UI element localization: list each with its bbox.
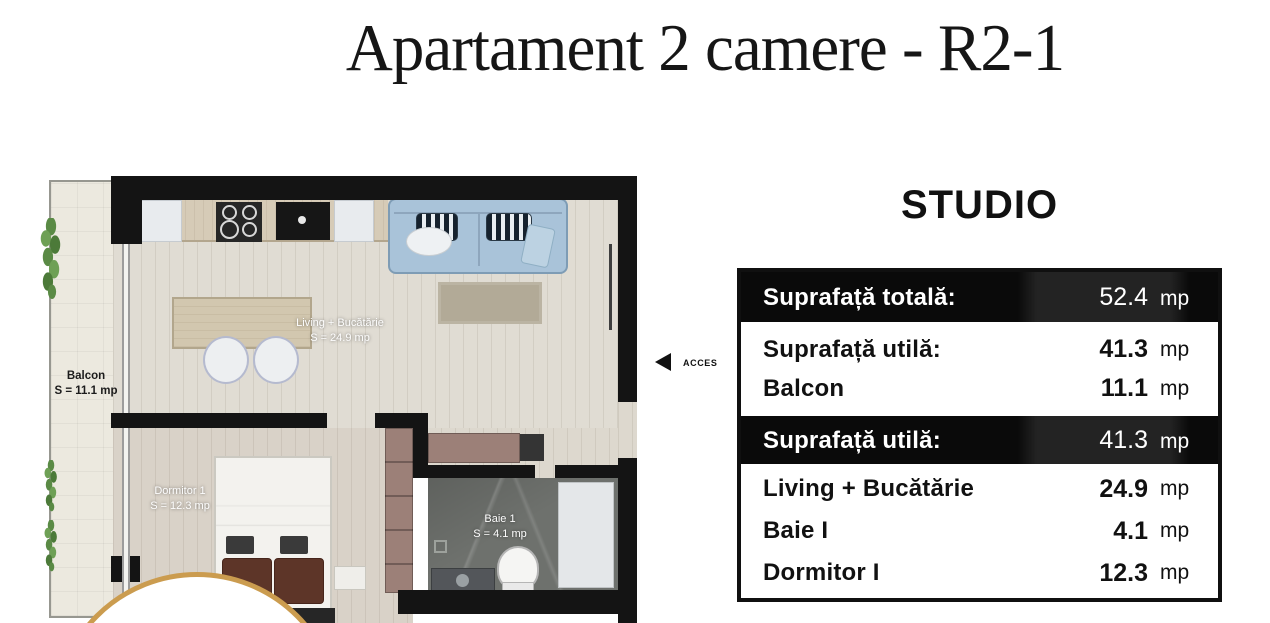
appliance: [520, 434, 544, 461]
area-row-value: 24.9: [1066, 475, 1148, 504]
room-name: Dormitor 1: [115, 484, 245, 499]
wall: [618, 176, 637, 402]
wall: [413, 465, 535, 478]
entry-floor: [618, 402, 637, 458]
area-row-label: Suprafață utilă:: [763, 427, 1066, 455]
floor-plan: Living + Bucătărie S = 24.9 mp Balcon S …: [0, 0, 720, 623]
wardrobe: [385, 428, 413, 593]
room-name: Balcon: [36, 369, 136, 384]
plant-icon: [38, 218, 64, 300]
room-area: S = 11.1 mp: [36, 384, 136, 399]
wall: [398, 590, 637, 614]
bed-runner: [226, 536, 254, 554]
shower: [558, 482, 614, 588]
bed-runner: [280, 536, 308, 554]
bed-pillow: [274, 558, 324, 604]
kitchen-cabinet: [140, 200, 182, 242]
table-row: Suprafață utilă: 41.3 mp Balcon 11.1 mp: [741, 322, 1218, 416]
area-row: Living + Bucătărie 24.9 mp: [741, 468, 1218, 510]
area-row-unit: mp: [1148, 519, 1204, 543]
room-label-baie: Baie 1 S = 4.1 mp: [440, 512, 560, 542]
room-area: S = 4.1 mp: [440, 527, 560, 542]
area-row-unit: mp: [1148, 477, 1204, 501]
burner: [222, 205, 237, 220]
studio-heading: STUDIO: [737, 183, 1222, 228]
faucet-icon: [298, 216, 306, 224]
table-row: Suprafață totală: 52.4 mp: [741, 272, 1218, 322]
basin-icon: [456, 574, 469, 587]
sofa: [388, 198, 568, 274]
chair: [203, 336, 249, 384]
burner: [242, 205, 257, 220]
area-row: Baie I 4.1 mp: [741, 510, 1218, 552]
access-label: ACCES: [683, 358, 718, 368]
wall: [111, 176, 142, 244]
area-row-label: Baie I: [763, 517, 1066, 545]
area-table: Suprafață totală: 52.4 mp Suprafață util…: [737, 268, 1222, 602]
plant-icon: [38, 520, 64, 572]
area-row: Suprafață utilă: 41.3 mp: [741, 330, 1218, 369]
area-row-label: Suprafață totală:: [763, 284, 1066, 312]
sofa-seat-divider: [478, 214, 480, 266]
area-row: Dormitor I 12.3 mp: [741, 552, 1218, 594]
burner: [242, 222, 257, 237]
room-name: Living + Bucătărie: [275, 316, 405, 331]
bathroom-vanity: [431, 568, 495, 592]
room-area: S = 12.3 mp: [115, 499, 245, 514]
area-row-unit: mp: [1148, 287, 1204, 311]
page-canvas: Apartament 2 camere - R2-1: [0, 0, 1270, 623]
area-row-label: Dormitor I: [763, 559, 1066, 587]
area-row-value: 41.3: [1066, 335, 1148, 364]
area-row-value: 4.1: [1066, 517, 1148, 546]
table-row: Suprafață utilă: 41.3 mp: [741, 416, 1218, 464]
area-row-unit: mp: [1148, 377, 1204, 401]
area-row-unit: mp: [1148, 338, 1204, 362]
area-row-unit: mp: [1148, 561, 1204, 585]
wall: [111, 413, 327, 428]
burner: [220, 220, 239, 239]
nightstand: [334, 566, 366, 590]
hall-dresser: [428, 433, 520, 463]
area-row-label: Suprafață utilă:: [763, 336, 1066, 364]
sliding-door-line: [609, 244, 612, 330]
kitchen-cabinet: [334, 200, 374, 242]
access-arrow-icon: [655, 353, 671, 371]
wall: [113, 176, 637, 200]
rug: [438, 282, 542, 324]
plant-icon: [38, 460, 64, 512]
area-row-value: 52.4: [1066, 283, 1148, 312]
area-row-value: 41.3: [1066, 426, 1148, 455]
area-row-label: Living + Bucătărie: [763, 475, 1066, 503]
pillow: [406, 227, 452, 256]
room-name: Baie 1: [440, 512, 560, 527]
area-row-value: 11.1: [1066, 374, 1148, 403]
area-row-unit: mp: [1148, 430, 1204, 454]
area-row: Balcon 11.1 mp: [741, 369, 1218, 408]
room-area: S = 24.9 mp: [275, 331, 405, 346]
area-row: Suprafață utilă: 41.3 mp: [741, 426, 1218, 455]
area-row-value: 12.3: [1066, 559, 1148, 588]
wall: [555, 465, 618, 478]
room-label-dormitor: Dormitor 1 S = 12.3 mp: [115, 484, 245, 514]
sink-icon: [276, 202, 330, 240]
room-label-balcon: Balcon S = 11.1 mp: [36, 369, 136, 399]
area-row-label: Balcon: [763, 375, 1066, 403]
stove-icon: [216, 202, 262, 242]
table-row: Living + Bucătărie 24.9 mp Baie I 4.1 mp…: [741, 464, 1218, 598]
area-row: Suprafață totală: 52.4 mp: [741, 283, 1218, 312]
room-label-living: Living + Bucătărie S = 24.9 mp: [275, 316, 405, 346]
